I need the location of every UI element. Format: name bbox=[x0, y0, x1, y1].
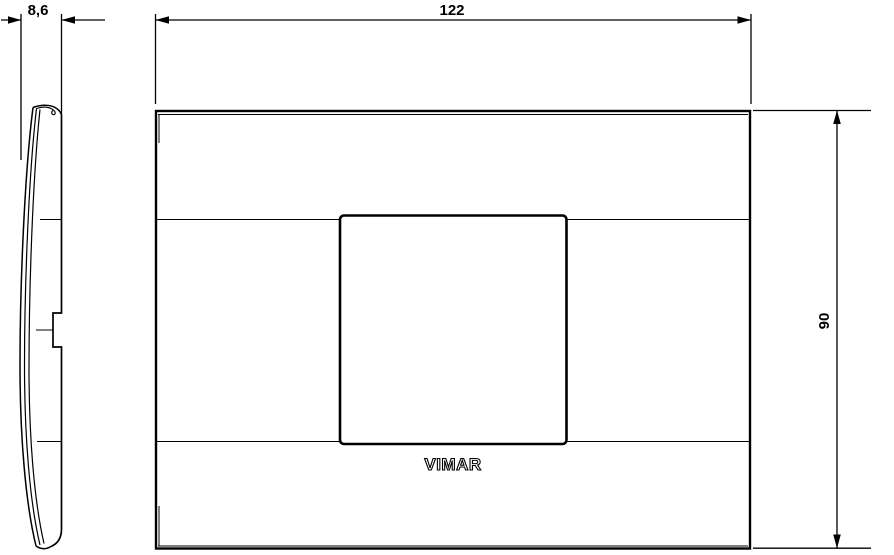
front-view bbox=[156, 111, 750, 549]
height-dimension bbox=[753, 111, 871, 549]
plate-outline bbox=[156, 111, 750, 549]
height-arrow-top bbox=[833, 111, 841, 125]
height-arrow-bottom bbox=[833, 535, 841, 549]
width-arrow-right bbox=[738, 16, 752, 24]
depth-dimension-label: 8,6 bbox=[28, 2, 49, 19]
width-dimension bbox=[156, 14, 752, 104]
side-view bbox=[1, 14, 105, 549]
depth-arrow-left bbox=[8, 16, 21, 24]
height-dimension-label: 90 bbox=[816, 313, 833, 330]
width-arrow-left bbox=[156, 16, 170, 24]
technical-drawing-canvas: 8,6 VIMAR 122 bbox=[0, 0, 894, 555]
module-opening bbox=[340, 216, 567, 445]
vimar-logo: VIMAR bbox=[424, 455, 481, 474]
depth-arrow-right bbox=[62, 16, 76, 24]
width-dimension-label: 122 bbox=[439, 2, 464, 19]
drawing-svg: 8,6 VIMAR 122 bbox=[0, 0, 894, 555]
profile-bottom-edge bbox=[36, 546, 51, 549]
profile-back-edge bbox=[51, 116, 62, 547]
